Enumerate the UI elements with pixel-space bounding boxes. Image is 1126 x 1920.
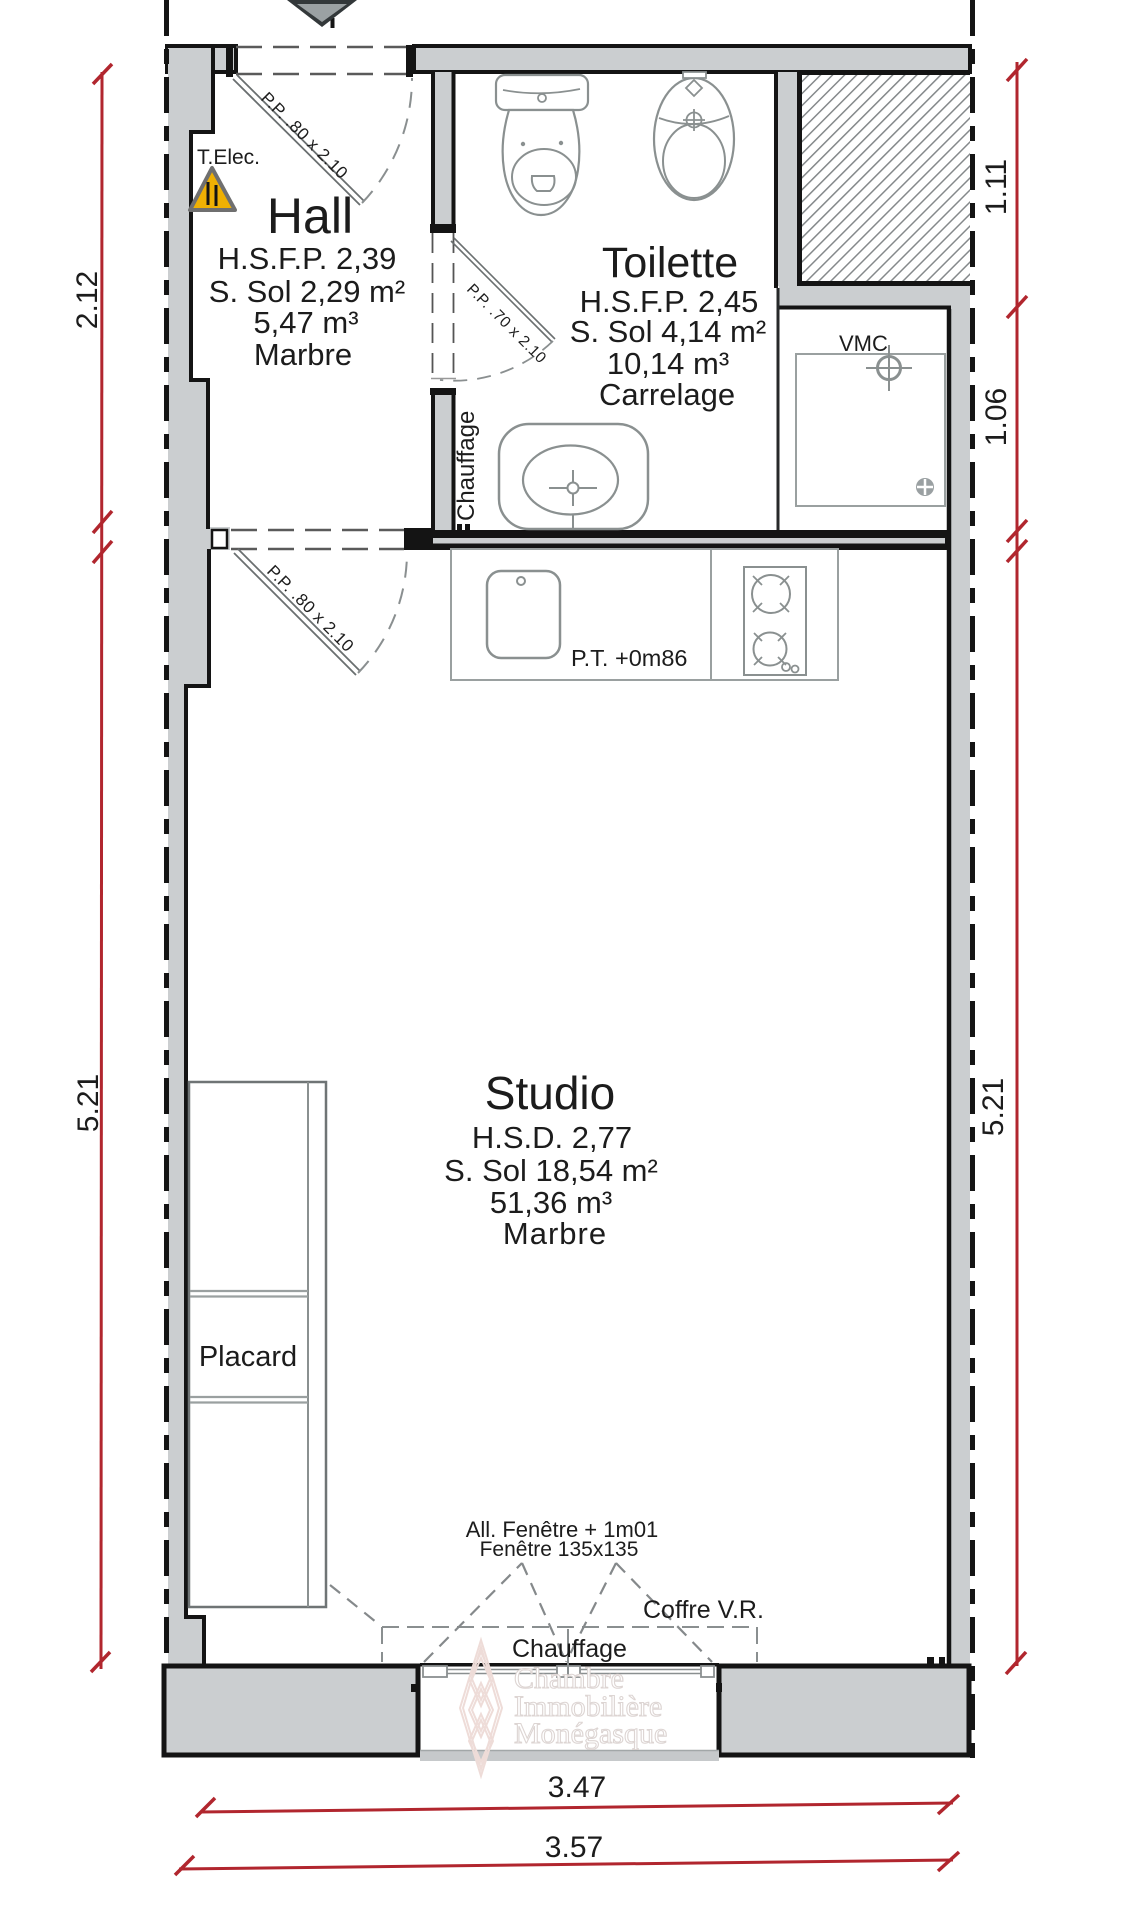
svg-text:S. Sol 2,29 m²: S. Sol 2,29 m² — [209, 274, 405, 309]
svg-text:Placard: Placard — [199, 1341, 297, 1373]
svg-text:T.Elec.: T.Elec. — [197, 146, 260, 169]
svg-text:Fenêtre 135x135: Fenêtre 135x135 — [480, 1538, 639, 1561]
svg-text:5.21: 5.21 — [72, 1074, 105, 1132]
svg-text:51,36 m³: 51,36 m³ — [490, 1185, 612, 1220]
svg-text:Coffre V.R.: Coffre V.R. — [643, 1596, 764, 1624]
svg-text:2.12: 2.12 — [71, 271, 104, 329]
svg-text:Chauffage: Chauffage — [512, 1635, 627, 1663]
svg-text:Marbre: Marbre — [254, 337, 352, 372]
svg-text:10,14 m³: 10,14 m³ — [607, 346, 729, 381]
svg-text:3.57: 3.57 — [545, 1831, 603, 1864]
svg-text:Hall: Hall — [267, 188, 353, 244]
svg-text:Toilette: Toilette — [602, 239, 738, 287]
svg-text:P.T. +0m86: P.T. +0m86 — [571, 645, 688, 671]
svg-text:5,47 m³: 5,47 m³ — [253, 305, 358, 340]
svg-text:Chauffage: Chauffage — [453, 411, 480, 521]
svg-text:Studio: Studio — [485, 1067, 615, 1119]
svg-text:S. Sol 18,54 m²: S. Sol 18,54 m² — [444, 1153, 658, 1188]
svg-text:3.47: 3.47 — [548, 1771, 606, 1804]
svg-text:H.S.F.P. 2,39: H.S.F.P. 2,39 — [218, 241, 397, 276]
svg-text:Monégasque: Monégasque — [514, 1717, 667, 1750]
svg-text:Marbre: Marbre — [503, 1216, 607, 1251]
svg-text:1.11: 1.11 — [980, 159, 1013, 215]
svg-text:Carrelage: Carrelage — [599, 377, 735, 412]
svg-text:VMC: VMC — [839, 331, 888, 356]
svg-text:1.06: 1.06 — [980, 388, 1013, 446]
svg-text:H.S.D. 2,77: H.S.D. 2,77 — [472, 1120, 632, 1155]
svg-text:5.21: 5.21 — [977, 1078, 1010, 1136]
svg-text:S. Sol 4,14 m²: S. Sol 4,14 m² — [570, 314, 766, 349]
